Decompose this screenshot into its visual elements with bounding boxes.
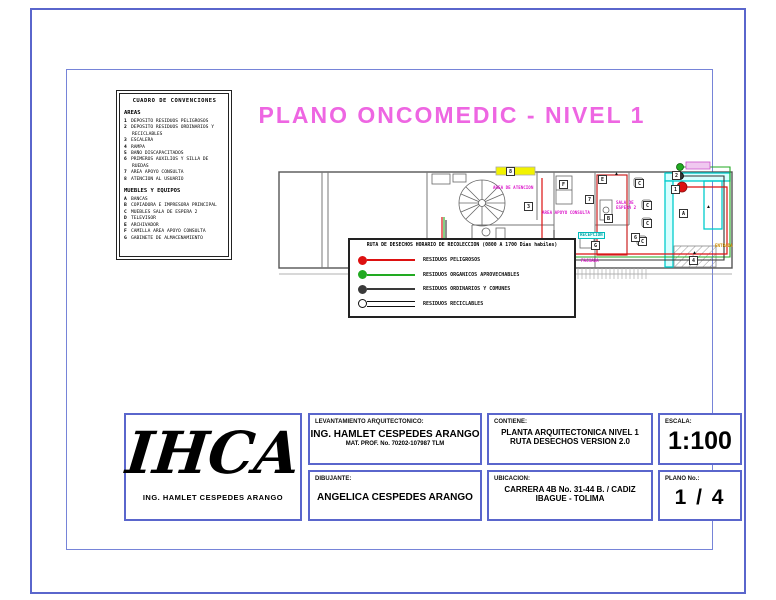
convention-key: 6 bbox=[124, 157, 131, 163]
plan-marker-badge: E bbox=[598, 175, 607, 184]
convention-key: 8 bbox=[124, 177, 131, 183]
route-legend-title: RUTA DE DESECHOS HORARIO DE RECOLECCION … bbox=[350, 243, 574, 248]
areas-heading: AREAS bbox=[124, 110, 225, 116]
conventions-title: CUADRO DE CONVENCIONES bbox=[124, 98, 225, 104]
plan-marker-badge: 1 bbox=[671, 185, 680, 194]
plan-area-label: FACHADA bbox=[581, 259, 599, 264]
dibujante-box: DIBUJANTE: ANGELICA CESPEDES ARANGO bbox=[308, 470, 482, 521]
plan-area-label: RECEPCION bbox=[578, 232, 605, 239]
levantamiento-label: LEVANTAMIENTO ARQUITECTONICO: bbox=[315, 419, 480, 425]
plan-marker-badge: C bbox=[643, 201, 652, 210]
attention-counter bbox=[496, 167, 535, 175]
escala-value: 1:100 bbox=[660, 427, 740, 456]
contiene-box: CONTIENE: PLANTA ARQUITECTONICA NIVEL 1 … bbox=[487, 413, 653, 465]
route-line-sample bbox=[367, 274, 415, 276]
route-legend-label: RESIDUOS ORDINARIOS Y COMUNES bbox=[423, 286, 510, 292]
route-direction-arrow: ▲ bbox=[706, 205, 711, 210]
convention-key: 2 bbox=[124, 125, 131, 131]
convention-item: 2DEPOSITO RESIDUOS ORDINARIOS Y RECICLAB… bbox=[124, 125, 225, 138]
levantamiento-name: ING. HAMLET CESPEDES ARANGO bbox=[310, 429, 480, 440]
route-legend-rows: RESIDUOS PELIGROSOSRESIDUOS ORGANICOS AP… bbox=[358, 253, 568, 311]
route-direction-arrow: ▲ bbox=[614, 172, 619, 177]
contiene-line1: PLANTA ARQUITECTONICA NIVEL 1 bbox=[489, 428, 651, 437]
dibujante-label: DIBUJANTE: bbox=[315, 476, 480, 482]
convention-label: ATENCION AL USUARIO bbox=[131, 177, 184, 182]
route-legend-item: RESIDUOS RECICLABLES bbox=[358, 297, 568, 312]
plan-marker-badge: C bbox=[635, 179, 644, 188]
plano-box: PLANO No.: 1 / 4 bbox=[658, 470, 742, 521]
route-legend-label: RESIDUOS ORGANICOS APROVECHABLES bbox=[423, 272, 519, 278]
plan-marker-badge: B bbox=[604, 214, 613, 223]
convention-label: AREA APOYO CONSULTA bbox=[131, 170, 184, 175]
route-color-dot bbox=[358, 299, 367, 308]
convention-label: DEPOSITO RESIDUOS PELIGROSOS bbox=[131, 119, 208, 124]
muebles-heading: MUEBLES Y EQUIPOS bbox=[124, 188, 225, 194]
plan-marker-badge: F bbox=[559, 180, 568, 189]
convention-label: RAMPA bbox=[131, 145, 145, 150]
route-legend-item: RESIDUOS PELIGROSOS bbox=[358, 253, 568, 268]
ubicacion-label: UBICACION: bbox=[494, 476, 651, 482]
levantamiento-matricula: MAT. PROF. No. 70202-107987 TLM bbox=[310, 441, 480, 447]
page-title: PLANO ONCOMEDIC - NIVEL 1 bbox=[232, 102, 672, 129]
dibujante-name: ANGELICA CESPEDES ARANGO bbox=[310, 492, 480, 503]
areas-list: 1DEPOSITO RESIDUOS PELIGROSOS2DEPOSITO R… bbox=[124, 119, 225, 183]
ubicacion-box: UBICACION: CARRERA 4B No. 31-44 B. / CAD… bbox=[487, 470, 653, 521]
route-legend-label: RESIDUOS RECICLABLES bbox=[423, 301, 483, 307]
plan-area-label: SALA DE ESPERA 2 bbox=[616, 201, 636, 210]
plan-marker-badge: 7 bbox=[585, 195, 594, 204]
plano-value: 1 / 4 bbox=[660, 486, 740, 510]
route-color-dot bbox=[358, 285, 367, 294]
convention-label: GABINETE DE ALMACENAMIENTO bbox=[131, 236, 203, 241]
contiene-label: CONTIENE: bbox=[494, 419, 651, 425]
plan-marker-badge: A bbox=[679, 209, 688, 218]
drawing-sheet: PLANO ONCOMEDIC - NIVEL 1 CUADRO DE CONV… bbox=[0, 0, 776, 600]
convention-label: TELEVISOR bbox=[131, 216, 156, 221]
conventions-box: CUADRO DE CONVENCIONES AREAS 1DEPOSITO R… bbox=[116, 90, 232, 260]
escala-box: ESCALA: 1:100 bbox=[658, 413, 742, 465]
convention-label: COPIADORA E IMPRESORA PRINCIPAL bbox=[131, 203, 217, 208]
logo-subtitle: ING. HAMLET CESPEDES ARANGO bbox=[126, 493, 300, 502]
convention-label: CAMILLA AREA APOYO CONSULTA bbox=[131, 229, 206, 234]
route-legend-label: RESIDUOS PELIGROSOS bbox=[423, 257, 480, 263]
plano-label: PLANO No.: bbox=[665, 476, 740, 482]
route-line-sample bbox=[367, 259, 415, 261]
convention-item: 8ATENCION AL USUARIO bbox=[124, 177, 225, 183]
plan-marker-badge: C bbox=[643, 219, 652, 228]
route-legend-item: RESIDUOS ORGANICOS APROVECHABLES bbox=[358, 268, 568, 283]
logo-text: IHCA bbox=[122, 419, 303, 487]
levantamiento-box: LEVANTAMIENTO ARQUITECTONICO: ING. HAMLE… bbox=[308, 413, 482, 465]
plan-area-label: ENTRADA bbox=[715, 244, 733, 249]
convention-key: G bbox=[124, 236, 131, 242]
route-direction-arrow: ▲ bbox=[692, 251, 697, 256]
convention-label: MUEBLES SALA DE ESPERA 2 bbox=[131, 210, 197, 215]
route-legend-box: RUTA DE DESECHOS HORARIO DE RECOLECCION … bbox=[348, 238, 576, 318]
plan-marker-badge: 3 bbox=[524, 202, 533, 211]
plan-marker-badge: 2 bbox=[672, 171, 681, 180]
ubicacion-line1: CARRERA 4B No. 31-44 B. / CADIZ bbox=[489, 485, 651, 494]
convention-item: 6PRIMEROS AUXILIOS Y SILLA DE RUEDAS bbox=[124, 157, 225, 170]
route-color-dot bbox=[358, 256, 367, 265]
plan-marker-badge: 4 bbox=[689, 256, 698, 265]
route-legend-item: RESIDUOS ORDINARIOS Y COMUNES bbox=[358, 282, 568, 297]
muebles-list: ABANCASBCOPIADORA E IMPRESORA PRINCIPALC… bbox=[124, 197, 225, 242]
plan-area-label: AREA APOYO CONSULTA bbox=[542, 211, 590, 216]
route-line-sample bbox=[367, 288, 415, 290]
convention-label: BAÑO DISCAPACITADOS bbox=[131, 151, 184, 156]
ubicacion-line2: IBAGUE - TOLIMA bbox=[489, 494, 651, 503]
plan-marker-badge: 6 bbox=[631, 233, 640, 242]
route-line-sample bbox=[367, 301, 415, 307]
convention-item: GGABINETE DE ALMACENAMIENTO bbox=[124, 236, 225, 242]
convention-label: BANCAS bbox=[131, 197, 148, 202]
plan-marker-badge: 8 bbox=[506, 167, 515, 176]
plan-area-label: AREA DE ATENCION bbox=[493, 186, 533, 191]
escala-label: ESCALA: bbox=[665, 419, 740, 425]
convention-label: PRIMEROS AUXILIOS Y SILLA DE RUEDAS bbox=[131, 157, 208, 168]
convention-label: ESCALERA bbox=[131, 138, 153, 143]
conventions-inner: CUADRO DE CONVENCIONES AREAS 1DEPOSITO R… bbox=[119, 93, 229, 257]
logo-box: IHCA ING. HAMLET CESPEDES ARANGO bbox=[124, 413, 302, 521]
convention-label: ARCHIVADOR bbox=[131, 223, 159, 228]
contiene-line2: RUTA DESECHOS VERSION 2.0 bbox=[489, 437, 651, 446]
sheet-outer-border: PLANO ONCOMEDIC - NIVEL 1 CUADRO DE CONV… bbox=[30, 8, 746, 594]
route-color-dot bbox=[358, 270, 367, 279]
plan-marker-badge: G bbox=[591, 241, 600, 250]
convention-label: DEPOSITO RESIDUOS ORDINARIOS Y RECICLABL… bbox=[131, 125, 214, 136]
